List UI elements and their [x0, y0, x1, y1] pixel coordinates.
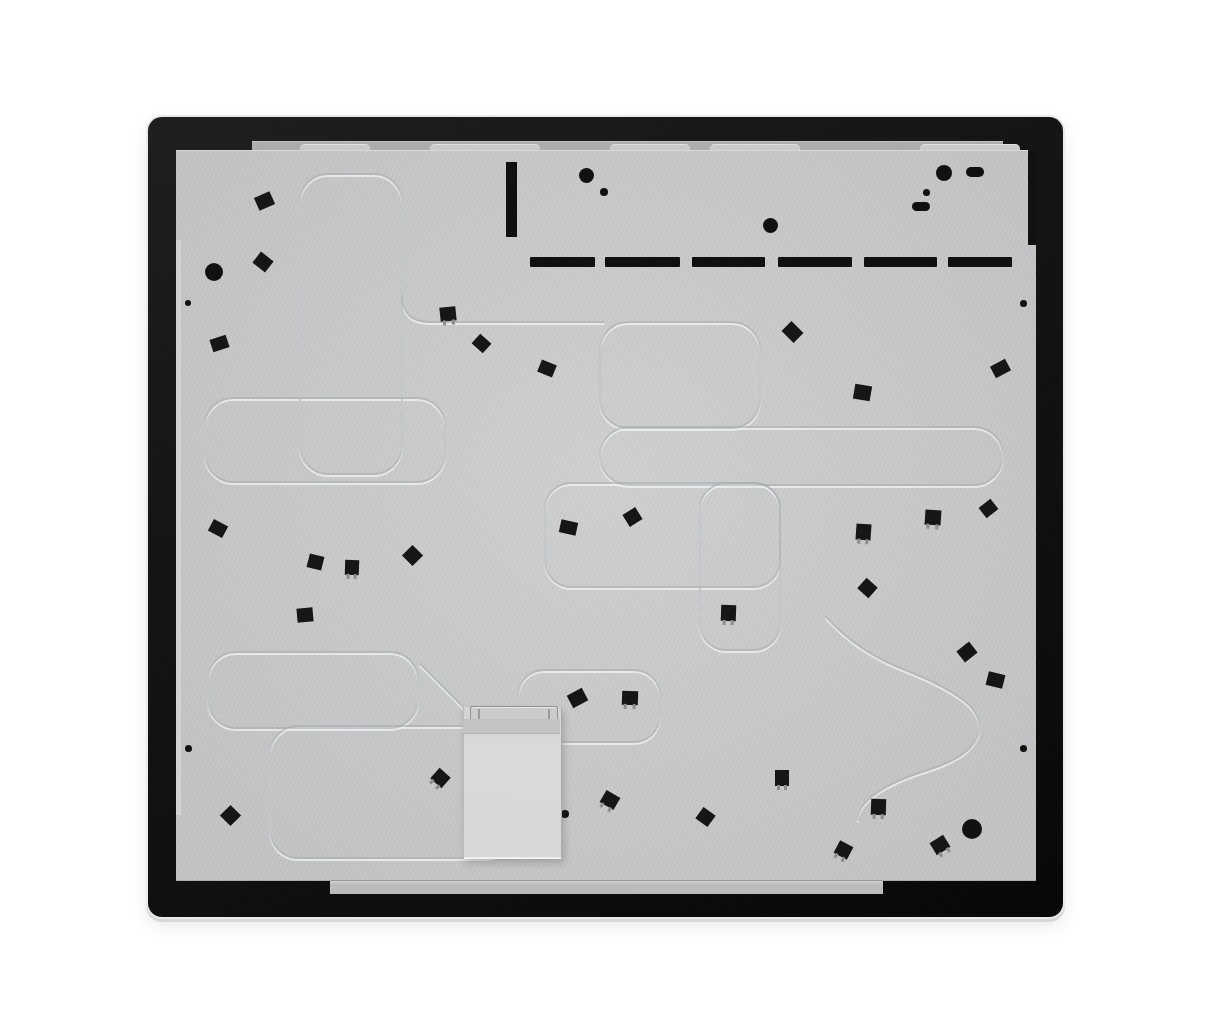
clip-leg	[857, 539, 860, 544]
scene-root: { "scene": { "subject": "appliance-back-…	[0, 0, 1210, 1036]
vent-dash-slot	[692, 257, 765, 267]
mounting-clip	[855, 523, 871, 540]
vent-dash-slot	[864, 257, 937, 267]
screw-hole-dot	[579, 168, 594, 183]
vent-dash-slot	[948, 257, 1012, 267]
clip-leg	[730, 620, 733, 625]
clip-leg	[880, 814, 883, 819]
mounting-clip	[924, 509, 941, 525]
clip-leg	[872, 814, 875, 819]
screw-hole-dot	[205, 263, 223, 281]
mounting-clip	[870, 799, 886, 816]
screw-hole-dot	[763, 218, 778, 233]
screw-hole-dot	[1020, 745, 1027, 752]
vent-dash-slot	[530, 257, 595, 267]
screw-hole-dot	[561, 810, 569, 818]
screw-hole-dot	[962, 819, 982, 839]
mounting-clip	[720, 605, 736, 622]
clip-leg	[633, 704, 636, 709]
screw-hole-dot	[185, 745, 192, 752]
clip-leg	[784, 785, 787, 790]
mounting-clip	[775, 770, 789, 786]
clip-leg	[926, 523, 929, 528]
clip-leg	[777, 785, 780, 790]
mounting-clip	[852, 383, 871, 401]
screw-hole-dot	[923, 189, 930, 196]
clip-leg	[722, 620, 725, 625]
clip-leg	[354, 574, 357, 579]
junction-box-lip	[470, 706, 558, 720]
screw-hole-dot	[936, 165, 952, 181]
left-flange-edge	[176, 240, 181, 815]
cable-slot-pill	[912, 202, 930, 211]
mounting-clip	[345, 559, 360, 574]
clip-leg	[865, 539, 868, 544]
panel-edge-step	[1028, 150, 1036, 245]
screw-hole-dot	[600, 188, 608, 196]
junction-box-band	[463, 719, 560, 734]
clip-leg	[452, 319, 456, 324]
mounting-clip	[439, 306, 456, 322]
mounting-clip	[622, 691, 638, 706]
vent-dash-slot	[778, 257, 852, 267]
clip-leg	[624, 704, 627, 709]
screw-hole-dot	[1020, 300, 1027, 307]
clip-leg	[935, 524, 938, 529]
vent-slot-bar	[506, 162, 517, 237]
clip-leg	[443, 320, 447, 325]
mounting-clip	[296, 607, 313, 622]
screw-hole-dot	[185, 300, 191, 306]
bottom-flange-strip	[330, 880, 883, 894]
clip-leg	[347, 573, 350, 578]
vent-dash-slot	[605, 257, 680, 267]
mounting-clip	[558, 519, 577, 535]
cable-slot-pill	[966, 167, 984, 177]
